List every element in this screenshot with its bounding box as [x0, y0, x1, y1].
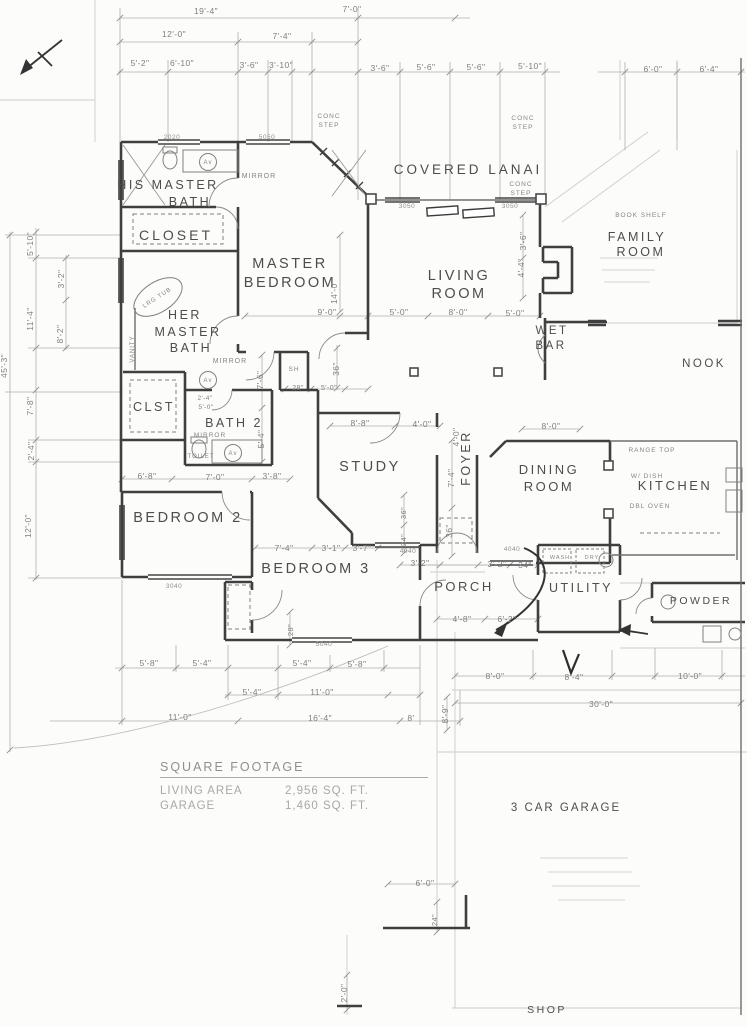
living-room-line2: ROOM — [431, 286, 486, 302]
mirror-his-bath: MIRROR — [242, 173, 276, 180]
dimensions-56: 8'-0" — [486, 671, 505, 681]
shower-sh: SH — [288, 366, 299, 373]
dimensions-27: 5'-0" — [321, 385, 337, 392]
garage-area-label: GARAGE — [160, 800, 285, 812]
his-master-bath-line2: BATH — [169, 195, 211, 209]
wash: WASH — [550, 555, 570, 561]
win-5050: 5050 — [259, 134, 275, 141]
porch: PORCH — [434, 579, 493, 594]
dimensions-46: 7'-4" — [275, 543, 294, 553]
floor-plan-drawing: HIS MASTERBATHCLOSETMASTERBEDROOMCOVERED… — [0, 0, 747, 1027]
foyer: FOYER — [459, 430, 473, 486]
dimensions-36: 8'-8" — [351, 418, 370, 428]
lrg-tub: LRG TUB — [142, 287, 173, 310]
study: STUDY — [339, 459, 401, 475]
dimensions-9: 5'-6" — [417, 62, 436, 72]
dimensions-2: 12'-0" — [162, 29, 186, 39]
dimensions-24: 5'-0" — [390, 307, 409, 317]
floor-outlet-1 — [410, 368, 418, 376]
mirror-her-bath: MIRROR — [213, 358, 247, 365]
dimensions-59: 30'-0" — [589, 699, 613, 709]
toilet-his — [163, 151, 177, 169]
layer-dimensions: 19'-4"7'-0"12'-0"7'-4"5'-2"6'-10"3'-6"3'… — [0, 4, 718, 1002]
win-3050-b: 3050 — [502, 203, 518, 210]
check-mark — [563, 650, 579, 673]
dimensions-69: 8'-9" — [440, 705, 450, 724]
dryer — [576, 549, 604, 573]
master-bedroom-line1: MASTER — [252, 256, 327, 272]
dimensions-70: 6'-0" — [416, 878, 435, 888]
dimensions-22: 14'-0" — [329, 280, 339, 304]
dry: DRY — [585, 555, 600, 561]
dbl-oven: DBL OVEN — [630, 503, 671, 510]
covered-lanai: COVERED LANAI — [394, 162, 543, 177]
dimensions-37: 4'-0" — [413, 419, 432, 429]
dimensions-40: 36" — [444, 524, 454, 538]
dimensions-31: 4'-4" — [516, 259, 526, 278]
dimensions-1: 7'-0" — [343, 4, 362, 14]
vanity: VANITY — [130, 335, 136, 362]
dimensions-20: 2'-4" — [26, 442, 36, 461]
dimensions-67: 16'-4" — [308, 713, 332, 723]
dimensions-23: 9'-0" — [318, 307, 337, 317]
master-bedroom-line2: BEDROOM — [244, 275, 336, 291]
conc-step-1a: CONC — [317, 113, 340, 120]
dimensions-10: 5'-6" — [467, 62, 486, 72]
dimensions-38: 4'-0" — [451, 428, 461, 447]
dimensions-58: 10'-0" — [678, 671, 702, 681]
garage-area-value: 1,460 SQ. FT. — [285, 800, 369, 812]
her-master-bath-line1: HER — [168, 308, 202, 322]
dining-room-line1: DINING — [519, 462, 580, 477]
dimensions-21: 12'-0" — [23, 514, 33, 538]
dimensions-39: 7'-4" — [446, 469, 456, 488]
dimensions-64: 5'-4" — [243, 687, 262, 697]
dimensions-55: 8'-0" — [542, 421, 561, 431]
dimensions-50: 3'-2" — [411, 558, 430, 568]
dimensions-60: 5'-8" — [140, 658, 159, 668]
toilet-label: TOILET — [188, 454, 215, 460]
dimensions-41: 36" — [399, 507, 408, 519]
family-room-line1: FAMILY — [608, 230, 667, 244]
dimensions-13: 6'-4" — [700, 64, 719, 74]
dimensions-7: 3'-10" — [269, 60, 293, 70]
dimensions-0: 19'-4" — [194, 6, 218, 16]
dining-column-2 — [604, 509, 613, 518]
dimensions-29: 5'-0" — [506, 308, 525, 318]
dimensions-16: 11'-4" — [25, 307, 35, 330]
nook: NOOK — [682, 358, 726, 370]
dimension-lines — [5, 8, 745, 1013]
kitchen: KITCHEN — [638, 478, 713, 493]
book-shelf: BOOK SHELF — [615, 212, 667, 219]
dimensions-35: 5'-0" — [199, 404, 214, 411]
washer — [543, 549, 571, 573]
floor-plan-sheet: HIS MASTERBATHCLOSETMASTERBEDROOMCOVERED… — [0, 0, 747, 1027]
dimensions-43: 6'-8" — [138, 471, 157, 481]
dimensions-72: 2'-0" — [339, 984, 349, 1003]
dimensions-30: 3'-6" — [518, 232, 528, 251]
lav-1: Av — [204, 160, 213, 166]
powder-sink-1 — [703, 626, 721, 642]
dimensions-65: 11'-0" — [310, 687, 333, 697]
dimensions-33: 5'-4" — [256, 430, 266, 449]
dimensions-28: 8'-0" — [449, 307, 468, 317]
range-top: RANGE TOP — [628, 447, 675, 454]
win-5040: 5040 — [316, 641, 332, 648]
dimensions-17: 8'-2" — [55, 325, 65, 344]
conc-step-2a: CONC — [511, 115, 534, 122]
clst: CLST — [133, 400, 175, 414]
dimensions-15: 3'-2" — [56, 270, 66, 289]
dimensions-11: 5'-10" — [518, 61, 542, 71]
w-dish: W/ DISH — [631, 473, 663, 480]
lav-2: Av — [204, 378, 213, 384]
powder: POWDER — [670, 595, 732, 607]
wet-bar-line2: BAR — [535, 340, 566, 352]
conc-step-2b: STEP — [513, 124, 534, 131]
lanai-column-1 — [366, 194, 376, 204]
fixtures — [127, 147, 742, 642]
square-footage-block: SQUARE FOOTAGE LIVING AREA 2,956 SQ. FT.… — [160, 760, 428, 815]
dimensions-42: 24" — [399, 534, 408, 546]
dimensions-57: 8'-4" — [565, 672, 584, 682]
square-footage-heading: SQUARE FOOTAGE — [160, 760, 428, 778]
north-arrow-head — [20, 59, 33, 75]
dimensions-49: 28" — [286, 624, 295, 636]
lanai-column-2 — [536, 194, 546, 204]
dimensions-3: 7'-4" — [273, 31, 292, 41]
dimensions-8: 3'-6" — [371, 63, 390, 73]
dimensions-71: 24" — [430, 914, 439, 926]
living-area-value: 2,956 SQ. FT. — [285, 785, 369, 797]
dimensions-66: 11'-0" — [168, 712, 191, 722]
shop: SHOP — [527, 1004, 567, 1016]
dimensions-12: 6'-0" — [644, 64, 663, 74]
dimensions-63: 5'-8" — [348, 659, 367, 669]
dimensions-51: 3'-2" — [488, 559, 507, 569]
bedroom-2: BEDROOM 2 — [133, 510, 243, 526]
dim-ticks — [7, 15, 744, 1013]
dimensions-44: 7'-0" — [206, 472, 225, 482]
living-area-label: LIVING AREA — [160, 785, 285, 797]
family-room-line2: ROOM — [617, 245, 666, 259]
dimensions-18: 45'-3" — [0, 354, 9, 378]
kitchen-sink-1 — [726, 468, 742, 482]
dimensions-68: 8' — [407, 713, 414, 723]
kitchen-sink-2 — [726, 490, 742, 512]
conc-step-1b: STEP — [319, 122, 340, 129]
dimensions-32: 7'-6" — [255, 371, 265, 390]
bath-2: BATH 2 — [205, 416, 263, 430]
dimensions-47: 3'-1" — [322, 543, 341, 553]
dimensions-45: 3'-8" — [263, 471, 282, 481]
dimensions-54: 6'-2" — [498, 614, 517, 624]
dimensions-61: 5'-4" — [193, 658, 212, 668]
win-3040: 3040 — [166, 583, 182, 590]
floor-outlet-2 — [494, 368, 502, 376]
dimensions-14: 5'-10" — [25, 232, 35, 256]
living-room-line1: LIVING — [428, 268, 491, 284]
mirror-bath2: MIRROR — [194, 432, 226, 439]
dining-column-1 — [604, 461, 613, 470]
his-master-bath-line1: HIS MASTER — [117, 178, 218, 192]
dimensions-19: 7'-8" — [25, 397, 35, 416]
bedroom-3: BEDROOM 3 — [261, 561, 371, 577]
dimensions-5: 6'-10" — [170, 58, 194, 68]
lav-3: Av — [229, 451, 238, 457]
dimensions-26: 28" — [292, 385, 304, 392]
dimensions-53: 4'-8" — [453, 614, 472, 624]
conc-step-3a: CONC — [509, 181, 532, 188]
dimensions-52: 34" — [518, 560, 532, 570]
dining-room-line2: ROOM — [524, 479, 574, 494]
her-master-bath-line2: MASTER — [154, 325, 221, 339]
conc-step-3b: STEP — [511, 190, 532, 197]
sliding-door-panels — [427, 206, 494, 218]
win-2020: 2020 — [164, 134, 180, 141]
three-car-garage: 3 CAR GARAGE — [511, 802, 621, 814]
powder-sink-2 — [729, 628, 741, 640]
win-4040-a: 4040 — [400, 548, 416, 555]
dimensions-6: 3'-6" — [240, 60, 259, 70]
win-4040-b: 4040 — [504, 546, 520, 553]
toilet-his-tank — [163, 147, 177, 153]
bed3-closet-shelf — [228, 585, 250, 629]
her-master-bath-line3: BATH — [170, 341, 212, 355]
dimensions-62: 5'-4" — [293, 658, 312, 668]
utility: UTILITY — [549, 581, 613, 595]
dimensions-25: 36" — [331, 362, 341, 376]
dimensions-4: 5'-2" — [131, 58, 150, 68]
dimensions-34: 2'-4" — [198, 395, 213, 402]
win-3050-a: 3050 — [399, 203, 415, 210]
closet: CLOSET — [139, 227, 213, 243]
dimensions-48: 3'-7" — [353, 543, 372, 553]
square-footage-row: LIVING AREA 2,956 SQ. FT. — [160, 785, 428, 797]
door-swings — [123, 145, 652, 620]
wet-bar-line1: WET — [535, 325, 568, 337]
square-footage-row: GARAGE 1,460 SQ. FT. — [160, 800, 428, 812]
